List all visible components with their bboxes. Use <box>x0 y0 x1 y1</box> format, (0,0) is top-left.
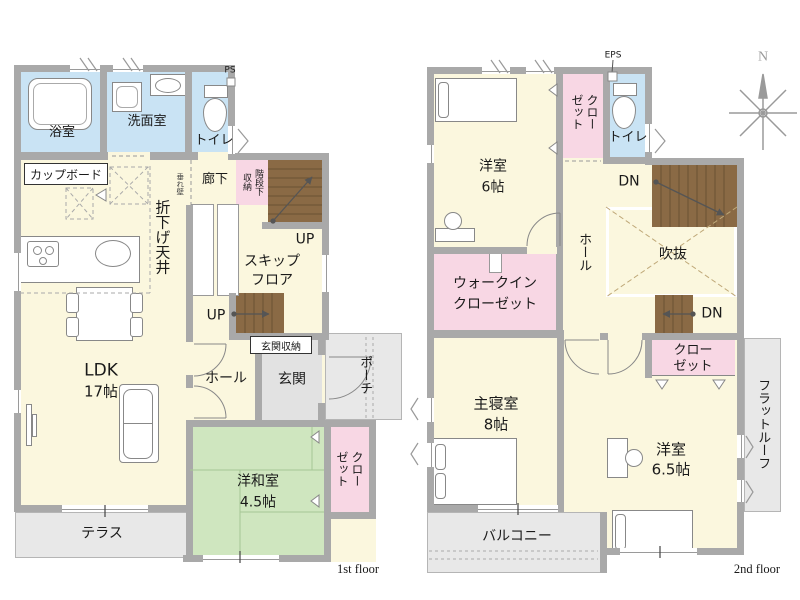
bath-label: 浴室 <box>49 125 75 141</box>
up-lower-label: UP <box>207 307 226 325</box>
ldk-size-label: 17帖 <box>84 383 118 402</box>
hall-2f-label: ホール <box>575 233 591 272</box>
terrace-label: テラス <box>81 525 123 543</box>
dashed-line <box>366 337 598 559</box>
room65-label: 洋室 <box>656 441 686 460</box>
window-tick <box>105 503 660 563</box>
eps-label: EPS <box>605 50 622 61</box>
balcony-label: バルコニー <box>482 528 552 546</box>
entrance-storage-label: 玄関収納 <box>261 338 301 353</box>
door-triangle <box>96 84 725 507</box>
closet-2f-top-label: クローゼット <box>569 90 599 134</box>
void-label: 吹抜 <box>659 246 687 264</box>
ps-label: PS <box>224 65 235 76</box>
hall-1f-label: ホール <box>205 370 247 388</box>
skip-floor-label-1: スキップ <box>244 253 300 271</box>
corridor-label: 廊下 <box>202 172 228 188</box>
toilet-1f-label: トイレ <box>194 133 233 149</box>
master-bedroom-label: 主寝室 <box>473 395 518 414</box>
cupboard-label: カップボード <box>30 166 102 183</box>
compass-north-label: N <box>758 48 768 66</box>
toilet-2f-label: トイレ <box>608 130 647 146</box>
compass-rose <box>729 74 797 150</box>
wic-label-2: クローゼット <box>453 296 537 314</box>
hanging-wall-label: 垂れ壁 <box>175 173 184 196</box>
floor2-caption: 2nd floor <box>734 562 780 578</box>
ps-eps-shaft <box>227 60 617 86</box>
dropped-ceiling-label: 折下げ天井 <box>153 200 172 275</box>
plan-linework <box>0 0 800 600</box>
tatami-lines <box>190 427 324 555</box>
room65-size-label: 6.5帖 <box>652 461 691 480</box>
room6-size-label: 6帖 <box>482 179 505 197</box>
washroom-label: 洗面室 <box>127 114 166 130</box>
entrance-label: 玄関 <box>278 371 306 389</box>
master-bedroom-size-label: 8帖 <box>484 416 509 435</box>
under-stairs-storage-label: 階段下収納 <box>240 166 264 198</box>
cupboard-box: カップボード <box>24 163 108 185</box>
flat-roof-label: フラットルーフ <box>754 379 770 470</box>
japanese-room-size-label: 4.5帖 <box>240 494 276 512</box>
closet-1f-label: クローゼット <box>334 447 364 491</box>
closet-2f-bottom-label-2: ゼット <box>673 359 712 375</box>
dn-lower-label: DN <box>701 305 722 323</box>
floor1-caption: 1st floor <box>337 562 379 578</box>
floor-plan-canvas: カップボード 玄関収納 浴室 洗面室 トイレ PS 廊下 垂れ壁 階段下収納 U… <box>0 0 800 600</box>
wic-label-1: ウォークイン <box>453 275 537 293</box>
window-slash <box>80 58 552 73</box>
dropped-ceiling-boundary <box>20 166 150 293</box>
dn-upper-label: DN <box>618 173 639 191</box>
japanese-room-label: 洋和室 <box>237 473 279 491</box>
up-upper-label: UP <box>296 231 315 249</box>
ldk-label: LDK <box>84 360 118 381</box>
room6-label: 洋室 <box>479 158 507 176</box>
skip-floor-label-2: フロア <box>251 272 293 290</box>
dashed-line <box>112 156 601 205</box>
porch-label: ポーチ <box>356 356 372 395</box>
entrance-storage-box: 玄関収納 <box>250 336 312 354</box>
closet-2f-bottom-label-1: クロー <box>673 343 712 359</box>
